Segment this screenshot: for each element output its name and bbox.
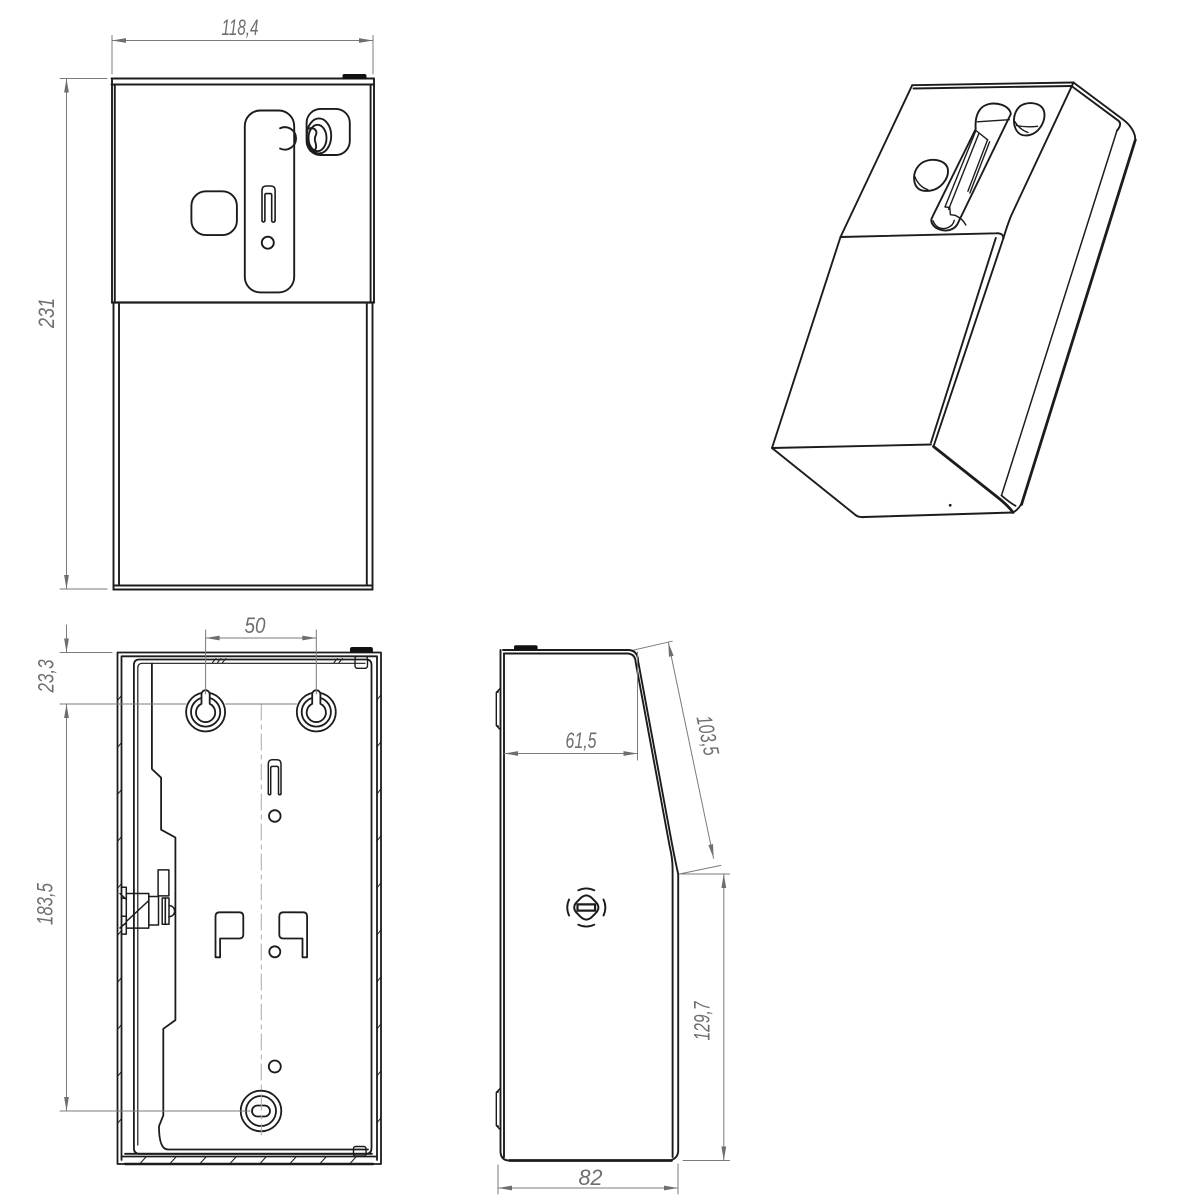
svg-text:103,5: 103,5 (691, 713, 724, 758)
svg-text:231: 231 (34, 298, 59, 329)
svg-text:183,5: 183,5 (33, 882, 58, 925)
svg-text:61,5: 61,5 (566, 728, 598, 753)
svg-text:129,7: 129,7 (690, 1001, 715, 1041)
svg-text:23,3: 23,3 (34, 659, 59, 693)
svg-text:82: 82 (579, 1165, 603, 1190)
svg-text:50: 50 (245, 613, 267, 638)
svg-text:118,4: 118,4 (222, 15, 259, 40)
